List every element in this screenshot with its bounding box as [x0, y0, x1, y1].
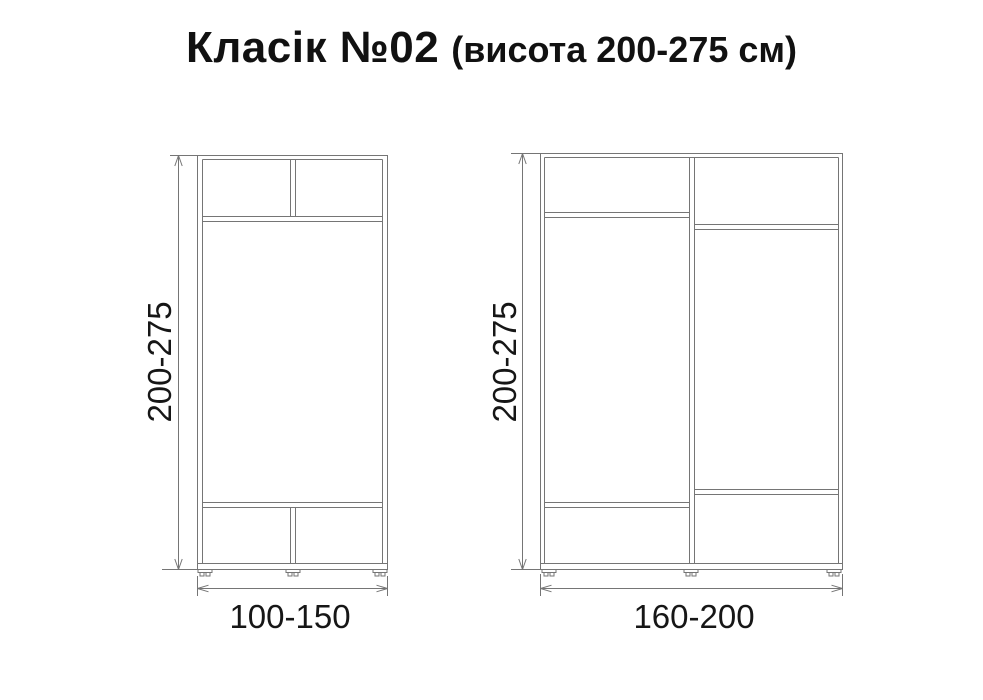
wardrobe-foot	[684, 570, 698, 577]
wardrobe-foot	[373, 570, 387, 577]
diagram-canvas: Класік №02(висота 200-275 см)	[0, 0, 983, 700]
right-wardrobe	[541, 154, 843, 577]
left-wardrobe-height-label: 200-275	[141, 301, 179, 422]
right-wardrobe-width-label: 160-200	[633, 598, 754, 636]
wardrobe-foot	[286, 570, 300, 577]
left-wardrobe	[198, 156, 388, 577]
right-wardrobe-height-label: 200-275	[486, 301, 524, 422]
wardrobe-foot	[827, 570, 841, 577]
right-width-dimension	[541, 574, 843, 596]
left-wardrobe-width-label: 100-150	[229, 598, 350, 636]
wardrobe-foot	[542, 570, 556, 577]
wardrobe-foot	[198, 570, 212, 577]
left-width-dimension	[198, 576, 388, 596]
